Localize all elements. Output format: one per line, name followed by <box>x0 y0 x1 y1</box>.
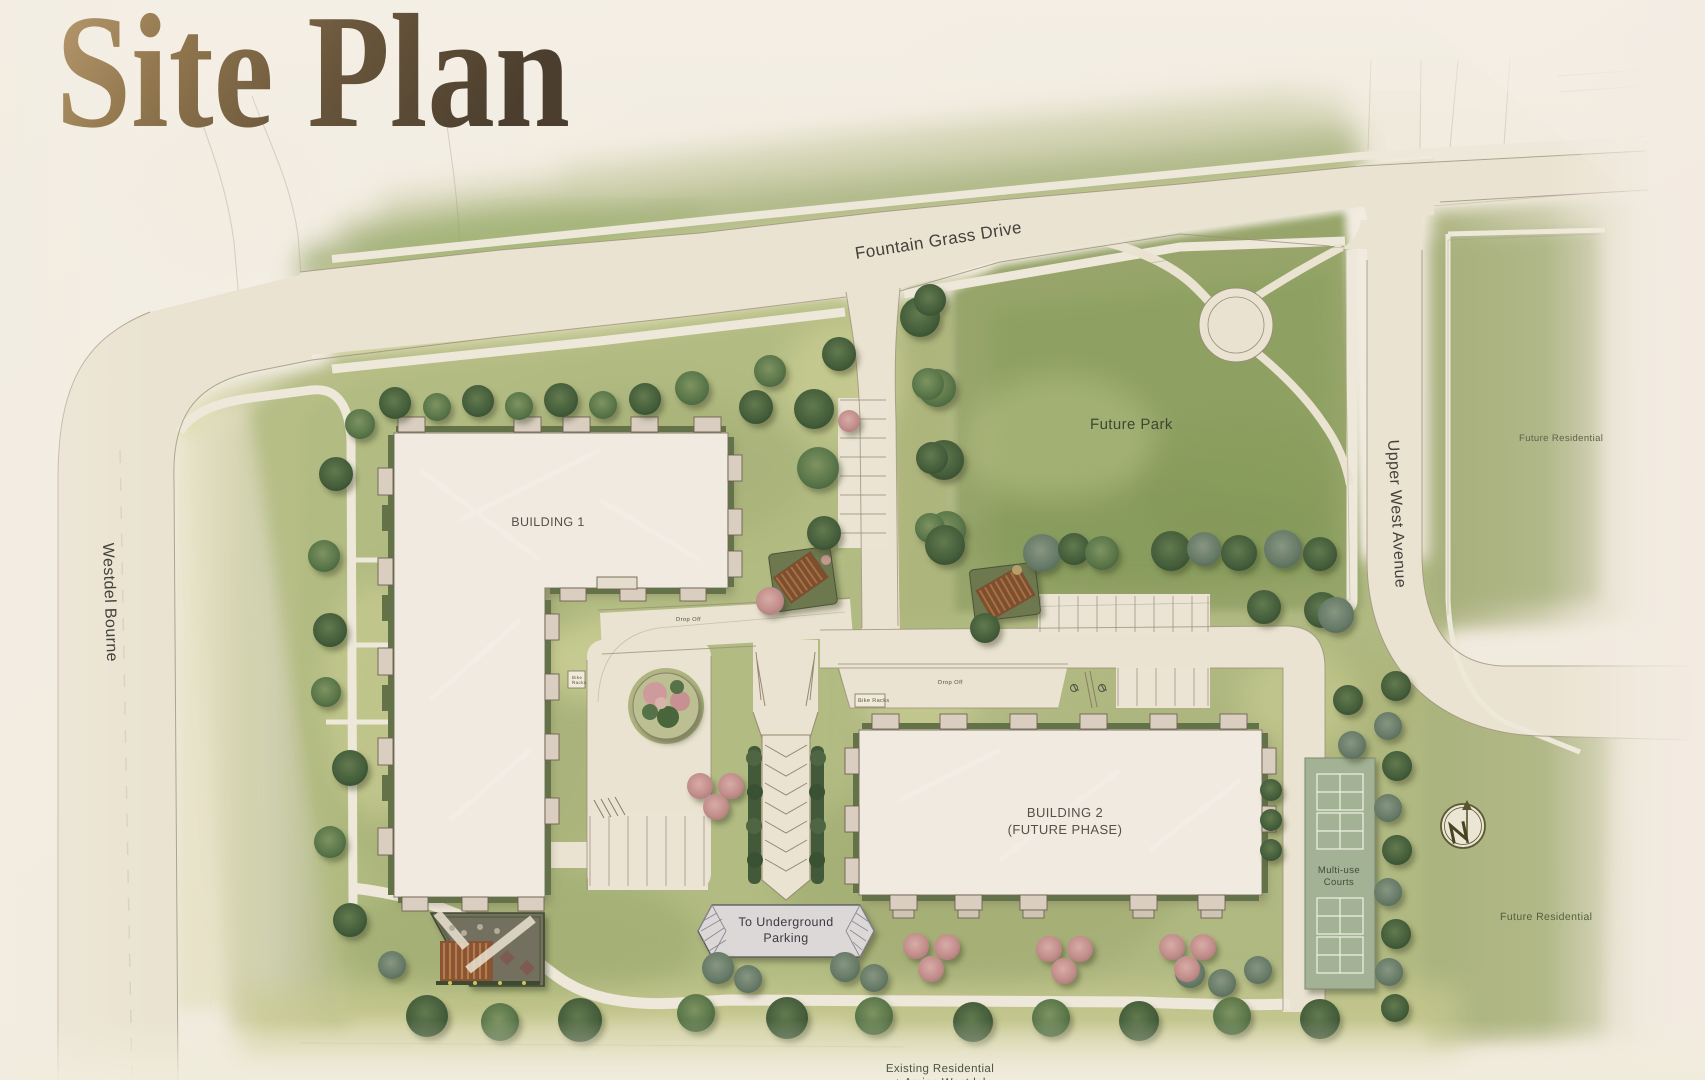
svg-text:Future Residential: Future Residential <box>1519 433 1603 444</box>
svg-text:Bike Racks: Bike Racks <box>858 698 890 704</box>
svg-text:Existing Residential: Existing Residential <box>886 1063 994 1075</box>
svg-text:Future Residential: Future Residential <box>1500 911 1592 923</box>
svg-text:(FUTURE PHASE): (FUTURE PHASE) <box>1008 822 1123 837</box>
svg-text:Racks: Racks <box>572 680 587 685</box>
svg-text:To Underground: To Underground <box>738 915 833 929</box>
svg-text:Parking: Parking <box>763 931 808 945</box>
svg-text:Courts: Courts <box>1324 877 1354 888</box>
svg-text:Site Plan: Site Plan <box>56 0 570 162</box>
svg-text:Future Park: Future Park <box>1090 416 1173 433</box>
svg-text:Drop Off: Drop Off <box>676 616 701 623</box>
svg-text:BUILDING 1: BUILDING 1 <box>511 515 584 529</box>
svg-text:BUILDING 2: BUILDING 2 <box>1027 805 1103 820</box>
svg-text:Drop Off: Drop Off <box>938 679 963 686</box>
svg-text:Multi-use: Multi-use <box>1318 865 1360 876</box>
